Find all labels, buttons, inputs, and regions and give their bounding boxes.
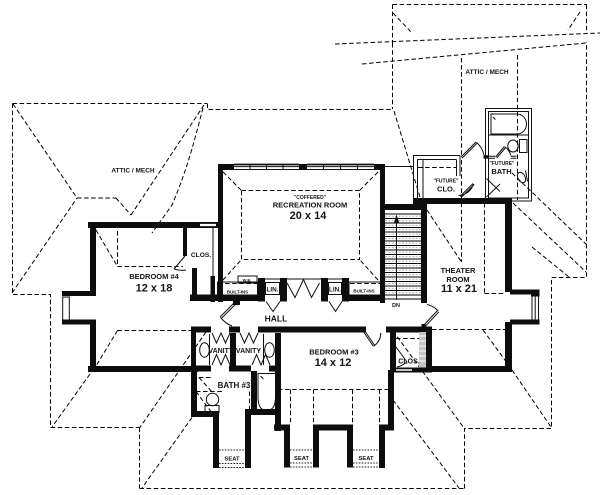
svg-text:VANITY: VANITY: [208, 348, 233, 355]
svg-text:SEAT: SEAT: [358, 456, 373, 462]
svg-text:ATTIC / MECH: ATTIC / MECH: [465, 69, 509, 76]
svg-text:BATH: BATH: [491, 167, 511, 176]
svg-text:CLOS.: CLOS.: [191, 252, 211, 259]
svg-text:BATH #3: BATH #3: [218, 381, 251, 390]
svg-text:LIN.: LIN.: [267, 287, 279, 294]
svg-text:CLO.: CLO.: [437, 185, 455, 194]
svg-text:HALL: HALL: [265, 314, 288, 324]
svg-text:ATTIC / MECH: ATTIC / MECH: [111, 168, 155, 175]
svg-text:BEDROOM #3: BEDROOM #3: [309, 348, 359, 357]
svg-text:W.B.: W.B.: [243, 278, 252, 283]
svg-text:BEDROOM #4: BEDROOM #4: [129, 272, 179, 281]
svg-text:CLOS.: CLOS.: [398, 359, 419, 366]
svg-text:LIN.: LIN.: [329, 287, 341, 294]
svg-text:14 x 12: 14 x 12: [315, 357, 352, 369]
svg-text:SEAT: SEAT: [294, 456, 309, 462]
svg-text:BUILT-INS: BUILT-INS: [353, 289, 374, 294]
svg-text:11 x 21: 11 x 21: [441, 283, 477, 295]
svg-text:VANITY: VANITY: [236, 348, 261, 355]
svg-text:SEAT: SEAT: [224, 457, 239, 463]
svg-text:RECREATION ROOM: RECREATION ROOM: [273, 201, 347, 210]
svg-text:20 x 14: 20 x 14: [290, 210, 328, 222]
svg-text:BUILT-INS: BUILT-INS: [227, 290, 248, 295]
svg-text:DN: DN: [392, 303, 400, 309]
svg-text:THEATER: THEATER: [441, 266, 476, 275]
svg-text:12 x 18: 12 x 18: [136, 283, 173, 295]
